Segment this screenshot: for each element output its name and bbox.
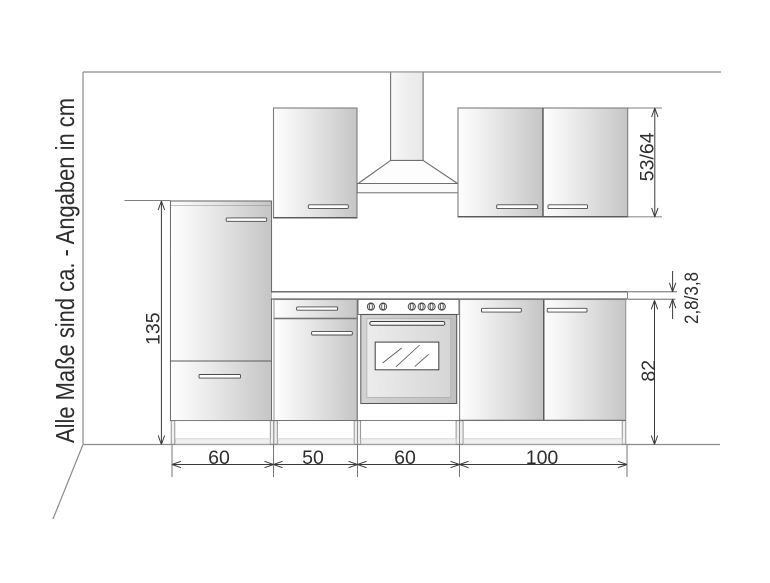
svg-text:53/64: 53/64 — [637, 132, 659, 181]
svg-text:82: 82 — [638, 360, 660, 382]
svg-text:Alle Maße sind ca. - Angaben i: Alle Maße sind ca. - Angaben in cm — [50, 98, 80, 443]
svg-text:2,8/3,8: 2,8/3,8 — [681, 272, 703, 324]
svg-text:60: 60 — [208, 447, 230, 469]
svg-text:100: 100 — [526, 447, 559, 469]
svg-text:50: 50 — [302, 447, 324, 469]
svg-text:60: 60 — [394, 447, 416, 469]
svg-text:135: 135 — [143, 312, 165, 345]
